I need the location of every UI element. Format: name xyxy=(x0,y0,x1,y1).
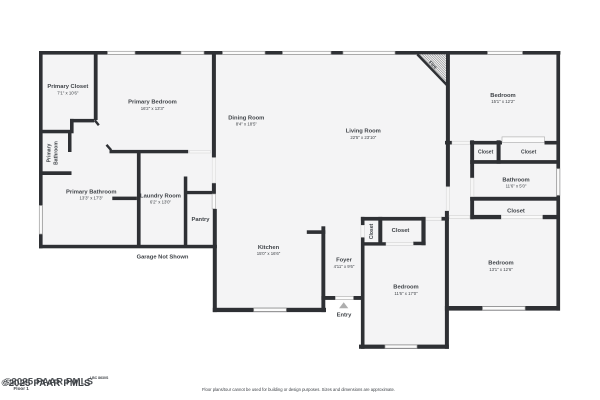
svg-text:13'1" x 12'6": 13'1" x 12'6" xyxy=(489,267,513,272)
svg-text:6'2" x 13'0": 6'2" x 13'0" xyxy=(150,200,172,205)
svg-text:Primary Closet: Primary Closet xyxy=(47,84,88,90)
svg-text:16'2" x 13'3": 16'2" x 13'3" xyxy=(141,106,165,111)
svg-text:Garage Not Shown: Garage Not Shown xyxy=(137,255,189,261)
svg-text:15'0" x 16'6": 15'0" x 16'6" xyxy=(257,251,281,256)
svg-text:15'1" x 12'2": 15'1" x 12'2" xyxy=(491,99,515,104)
svg-text:Closet: Closet xyxy=(369,224,375,240)
svg-text:22'5" x 23'10": 22'5" x 23'10" xyxy=(350,135,376,140)
svg-text:Living Room: Living Room xyxy=(346,129,381,135)
svg-text:Closet: Closet xyxy=(392,228,410,234)
svg-text:11'6" x 5'0": 11'6" x 5'0" xyxy=(506,183,527,188)
svg-text:8'4" x 18'5": 8'4" x 18'5" xyxy=(236,122,258,127)
svg-text:Primary: Primary xyxy=(47,143,53,162)
svg-text:Primary Bedroom: Primary Bedroom xyxy=(128,100,177,106)
svg-text:4'11" x 9'6": 4'11" x 9'6" xyxy=(334,264,355,269)
svg-text:7'1" x 10'6": 7'1" x 10'6" xyxy=(57,91,79,96)
svg-text:Closet: Closet xyxy=(478,150,494,156)
svg-text:Bathroom: Bathroom xyxy=(54,141,60,165)
svg-text:Bedroom: Bedroom xyxy=(488,261,513,267)
svg-text:13'3" x 17'3": 13'3" x 17'3" xyxy=(80,195,104,200)
svg-text:Floor plans/tour cannot be use: Floor plans/tour cannot be used for buil… xyxy=(202,387,395,392)
svg-text:Floor 1: Floor 1 xyxy=(14,386,30,391)
svg-text:LBC 8630S: LBC 8630S xyxy=(90,376,109,380)
svg-text:Pantry: Pantry xyxy=(191,217,210,223)
svg-text:11'6" x 17'0": 11'6" x 17'0" xyxy=(394,291,418,296)
svg-text:Bedroom: Bedroom xyxy=(393,285,418,291)
svg-text:Closet: Closet xyxy=(521,150,537,156)
svg-text:Entry: Entry xyxy=(337,313,353,319)
svg-text:Closet: Closet xyxy=(507,209,525,215)
svg-text:Foyer: Foyer xyxy=(336,258,353,264)
